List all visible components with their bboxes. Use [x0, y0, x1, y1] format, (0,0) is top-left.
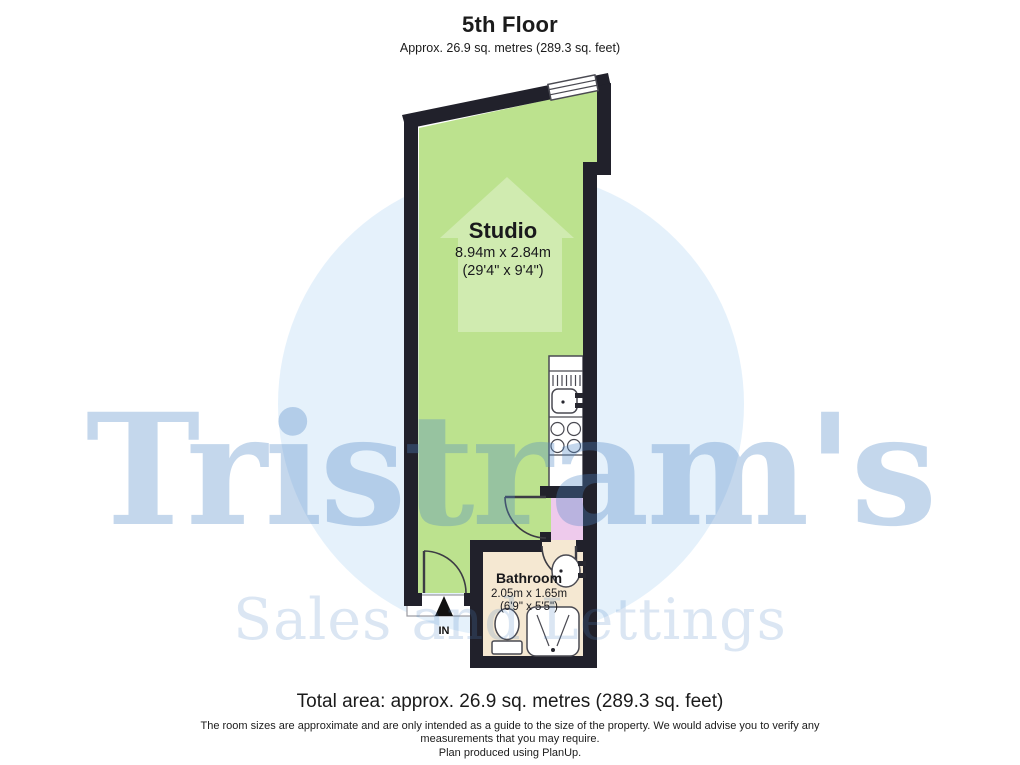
wall-segment-bath-top-right — [576, 540, 597, 552]
plan-header: 5th Floor Approx. 26.9 sq. metres (289.3… — [0, 12, 1020, 55]
shower-icon — [527, 607, 579, 656]
wall-segment-left — [404, 116, 418, 606]
wall-segment-right-upper — [597, 83, 611, 171]
kitchen-counter — [549, 356, 583, 487]
entrance-label: IN — [439, 625, 450, 637]
total-area: Total area: approx. 26.9 sq. metres (289… — [0, 691, 1020, 713]
page-title: 5th Floor — [0, 12, 1020, 38]
plan-credit: Plan produced using PlanUp. — [0, 747, 1020, 759]
wall-segment-hall-top — [540, 486, 597, 498]
bathroom-size-metric: 2.05m x 1.65m — [491, 588, 567, 600]
wall-segment-entrance-left — [404, 593, 422, 606]
floorplan-page: 5th Floor Approx. 26.9 sq. metres (289.3… — [0, 0, 1020, 765]
hall-floor — [551, 498, 583, 540]
studio-size-imperial: (29'4" x 9'4") — [462, 263, 543, 279]
wall-segment-right-lower — [583, 170, 597, 668]
plan-footer: Total area: approx. 26.9 sq. metres (289… — [0, 691, 1020, 759]
studio-size-metric: 8.94m x 2.84m — [455, 245, 551, 261]
floorplan-svg: Studio 8.94m x 2.84m (29'4" x 9'4") Bath… — [0, 0, 1020, 765]
studio-label: Studio — [469, 218, 537, 243]
toilet-icon — [492, 609, 522, 655]
bathroom-size-imperial: (6'9" x 5'5") — [500, 601, 558, 613]
bathroom-label: Bathroom — [496, 570, 562, 586]
wall-segment-bottom — [470, 656, 597, 668]
wall-segment-entrance-right — [464, 593, 483, 606]
disclaimer: The room sizes are approximate and are o… — [170, 720, 850, 746]
page-subtitle: Approx. 26.9 sq. metres (289.3 sq. feet) — [0, 41, 1020, 55]
